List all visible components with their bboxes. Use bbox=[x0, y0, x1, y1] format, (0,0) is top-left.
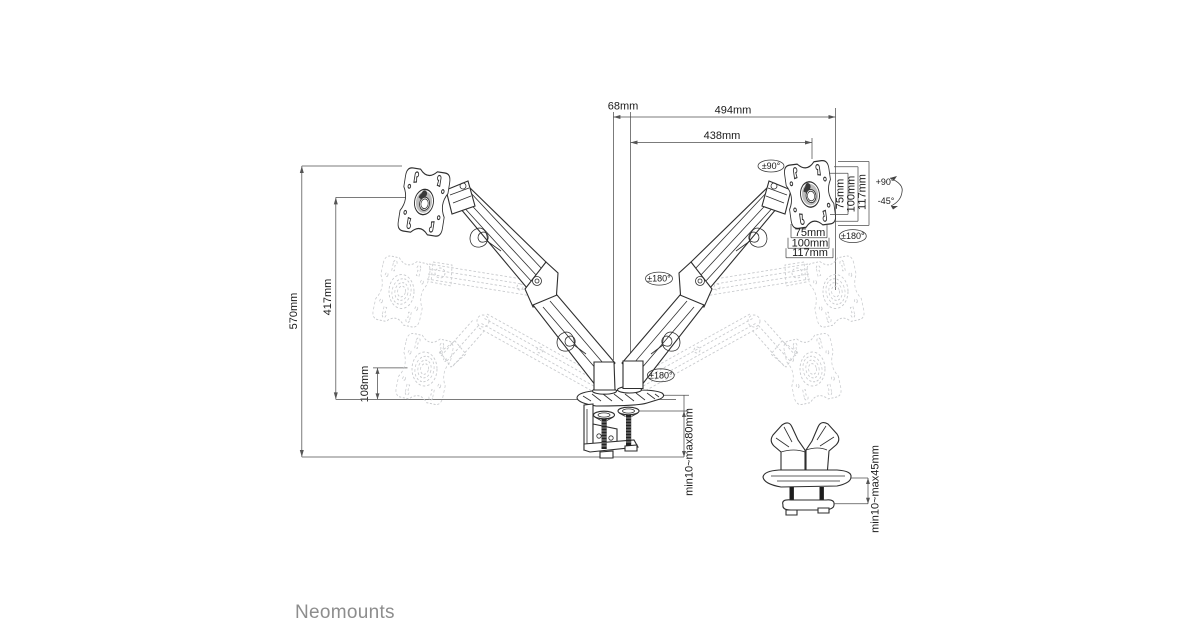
svg-text:±180°: ±180° bbox=[841, 231, 865, 241]
svg-text:±180°: ±180° bbox=[647, 274, 671, 284]
svg-text:Neomounts: Neomounts bbox=[295, 602, 395, 623]
svg-text:±180°: ±180° bbox=[649, 370, 673, 380]
svg-text:min10~max45mm: min10~max45mm bbox=[870, 445, 882, 533]
svg-text:117mm: 117mm bbox=[792, 247, 828, 259]
svg-text:417mm: 417mm bbox=[322, 279, 334, 316]
svg-text:117mm: 117mm bbox=[857, 174, 869, 210]
svg-text:570mm: 570mm bbox=[288, 293, 300, 330]
svg-text:min10~max80mm: min10~max80mm bbox=[684, 408, 696, 496]
svg-text:68mm: 68mm bbox=[608, 101, 639, 113]
svg-text:-45°: -45° bbox=[878, 196, 895, 206]
svg-text:108mm: 108mm bbox=[359, 366, 371, 403]
svg-text:494mm: 494mm bbox=[715, 105, 752, 117]
svg-text:438mm: 438mm bbox=[704, 130, 741, 142]
svg-text:±90°: ±90° bbox=[762, 161, 781, 171]
